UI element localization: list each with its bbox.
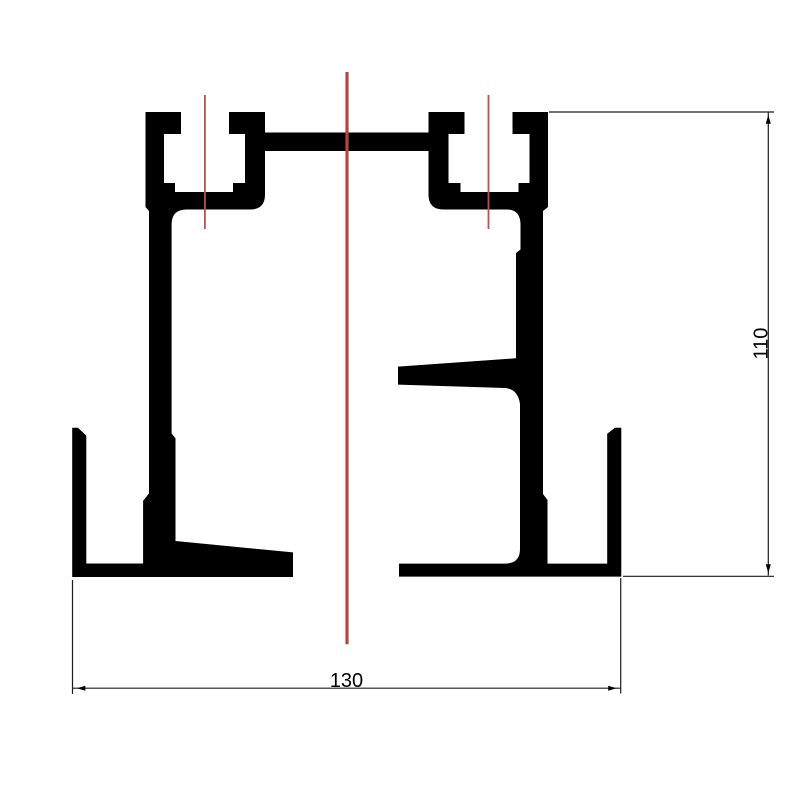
- svg-text:130: 130: [330, 670, 363, 692]
- svg-text:110: 110: [751, 328, 773, 360]
